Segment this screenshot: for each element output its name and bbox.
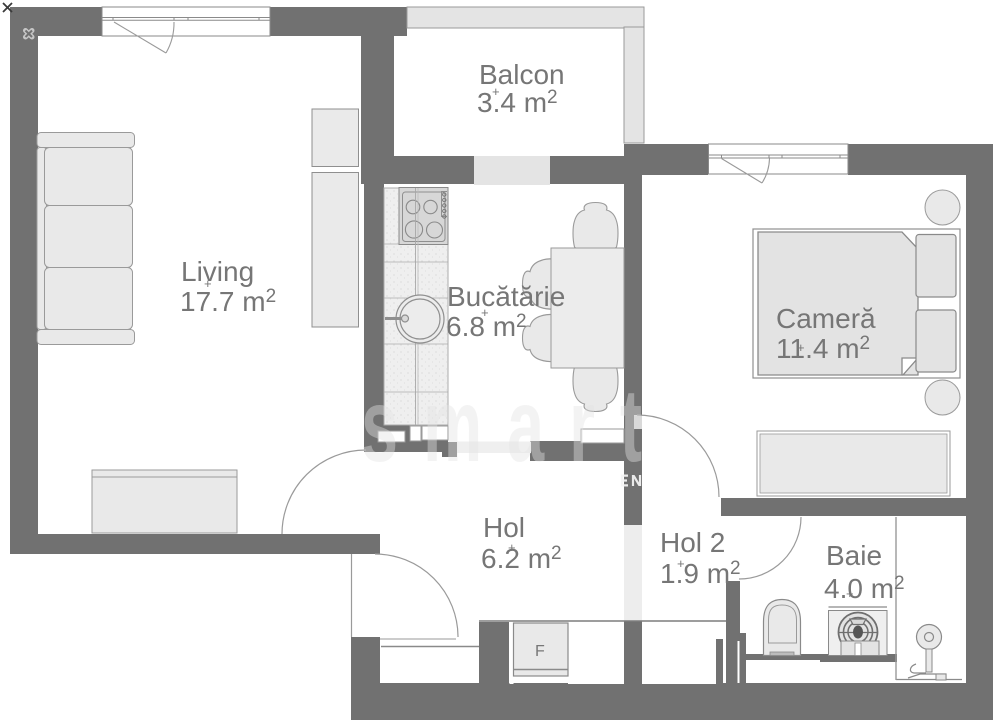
svg-text:+: + [846, 586, 854, 601]
svg-text:Baie: Baie [826, 540, 882, 571]
svg-text:17.7 m2: 17.7 m2 [180, 286, 276, 317]
svg-text:Living: Living [181, 256, 254, 287]
svg-text:Hol: Hol [483, 512, 525, 543]
svg-text:smart: smart [361, 367, 667, 484]
svg-text:11.4 m2: 11.4 m2 [776, 333, 870, 364]
svg-text:Hol 2: Hol 2 [660, 527, 725, 558]
svg-text:F: F [535, 643, 545, 660]
svg-text:Cameră: Cameră [776, 303, 876, 334]
svg-text:+: + [492, 84, 500, 99]
svg-text:6.2 m2: 6.2 m2 [481, 543, 562, 574]
svg-text:+: + [508, 540, 516, 555]
svg-text:1.9 m2: 1.9 m2 [660, 558, 741, 589]
svg-text:+: + [481, 305, 489, 320]
svg-text:+: + [204, 276, 212, 291]
svg-text:+: + [797, 340, 805, 355]
svg-text:+: + [677, 556, 685, 571]
svg-text:Bucătărie: Bucătărie [447, 281, 565, 312]
svg-text:3.4 m2: 3.4 m2 [477, 87, 558, 118]
svg-text:4.0 m2: 4.0 m2 [824, 573, 905, 604]
